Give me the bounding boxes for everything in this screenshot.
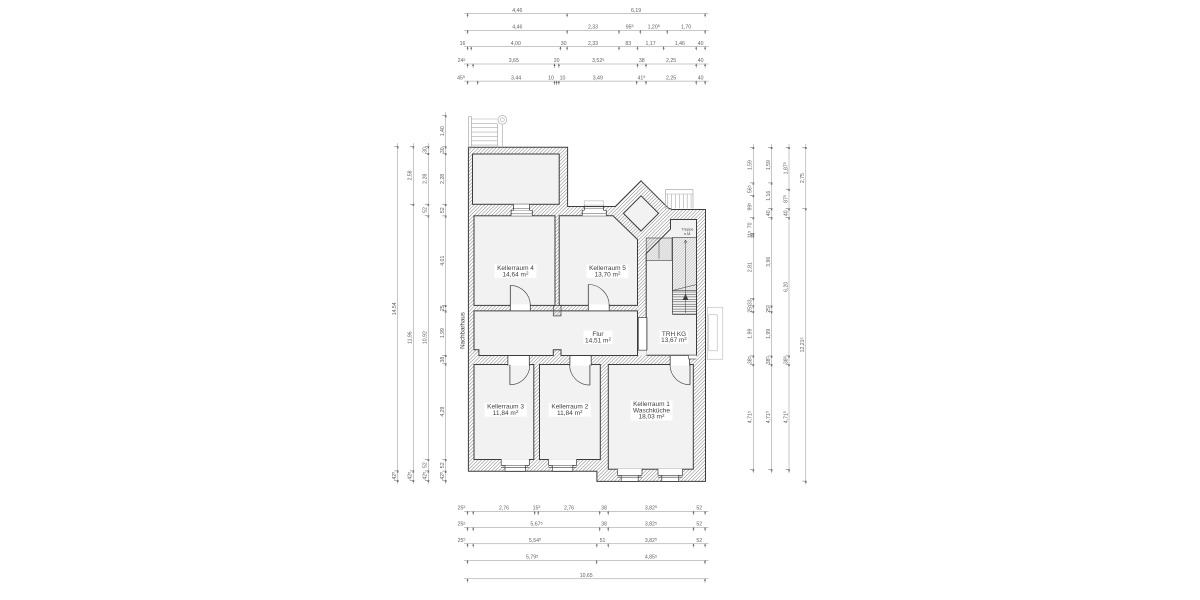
- svg-text:1,17: 1,17: [646, 41, 656, 47]
- svg-text:40: 40: [698, 58, 704, 64]
- svg-text:38: 38: [601, 522, 607, 528]
- svg-text:1,59: 1,59: [766, 160, 772, 170]
- svg-text:38: 38: [440, 357, 446, 363]
- svg-text:1,99: 1,99: [766, 329, 772, 339]
- svg-text:38: 38: [601, 506, 607, 512]
- svg-text:51: 51: [600, 538, 606, 544]
- svg-text:4,29: 4,29: [440, 406, 446, 416]
- svg-text:2,25: 2,25: [666, 58, 676, 64]
- svg-text:30: 30: [561, 41, 567, 47]
- svg-text:25: 25: [440, 305, 446, 311]
- svg-text:2,33: 2,33: [588, 41, 598, 47]
- svg-text:14,64 m2: 14,64 m2: [502, 271, 529, 279]
- svg-text:40: 40: [698, 41, 704, 47]
- svg-text:3,96: 3,96: [766, 257, 772, 267]
- svg-text:2,58: 2,58: [408, 170, 414, 180]
- svg-text:6,20: 6,20: [783, 282, 789, 292]
- svg-text:1,70: 1,70: [681, 25, 691, 31]
- svg-text:13,70 m2: 13,70 m2: [594, 271, 621, 279]
- svg-text:2,28: 2,28: [423, 174, 429, 184]
- svg-text:n.M.: n.M.: [684, 231, 692, 236]
- svg-text:3,44: 3,44: [511, 75, 521, 81]
- svg-text:20: 20: [554, 58, 560, 64]
- svg-text:52: 52: [696, 538, 702, 544]
- svg-text:40: 40: [783, 210, 789, 216]
- svg-text:3,49: 3,49: [593, 75, 603, 81]
- svg-text:10,92: 10,92: [423, 331, 429, 344]
- svg-text:2,28: 2,28: [440, 174, 446, 184]
- svg-text:3,65: 3,65: [509, 58, 519, 64]
- svg-text:6,19: 6,19: [631, 8, 641, 14]
- svg-text:11,84 m2: 11,84 m2: [493, 409, 519, 417]
- svg-text:4,01: 4,01: [440, 256, 446, 266]
- svg-text:2,81: 2,81: [748, 262, 754, 272]
- svg-text:14,54: 14,54: [392, 302, 398, 315]
- svg-text:10: 10: [548, 75, 554, 81]
- svg-text:2,25: 2,25: [666, 75, 676, 81]
- svg-text:52: 52: [423, 207, 429, 213]
- svg-text:1,99: 1,99: [748, 329, 754, 339]
- svg-text:70: 70: [748, 222, 754, 228]
- svg-text:2,75: 2,75: [800, 173, 806, 183]
- svg-text:52: 52: [696, 506, 702, 512]
- svg-text:1,46: 1,46: [675, 41, 685, 47]
- svg-text:11,96: 11,96: [408, 331, 414, 344]
- svg-text:1,40: 1,40: [440, 126, 446, 136]
- svg-text:2,33: 2,33: [588, 25, 598, 31]
- svg-text:1,99: 1,99: [440, 328, 446, 338]
- svg-text:52: 52: [440, 462, 446, 468]
- svg-text:13,67 m2: 13,67 m2: [661, 336, 687, 344]
- svg-text:52: 52: [696, 522, 702, 528]
- svg-text:16: 16: [460, 41, 466, 47]
- svg-text:14,51 m2: 14,51 m2: [585, 337, 612, 345]
- svg-text:1,16: 1,16: [766, 191, 772, 201]
- svg-text:38: 38: [639, 58, 645, 64]
- svg-text:4,46: 4,46: [512, 8, 522, 14]
- svg-text:2,76: 2,76: [499, 506, 509, 512]
- svg-text:30: 30: [440, 147, 446, 153]
- svg-text:18,03 m2: 18,03 m2: [638, 413, 665, 421]
- svg-text:4,00: 4,00: [511, 41, 521, 47]
- svg-text:83: 83: [625, 41, 631, 47]
- svg-text:4,46: 4,46: [512, 25, 522, 31]
- svg-text:2,76: 2,76: [564, 506, 574, 512]
- svg-text:Nachbarhaus: Nachbarhaus: [460, 312, 467, 349]
- svg-text:40: 40: [698, 75, 704, 81]
- svg-text:52: 52: [423, 462, 429, 468]
- svg-text:1,59: 1,59: [748, 160, 754, 170]
- svg-text:30: 30: [423, 147, 429, 153]
- svg-text:10: 10: [560, 75, 566, 81]
- svg-text:40: 40: [766, 210, 772, 216]
- svg-text:10,65: 10,65: [580, 573, 593, 579]
- svg-text:52: 52: [440, 207, 446, 213]
- svg-text:33: 33: [748, 299, 754, 305]
- svg-text:11,84 m2: 11,84 m2: [557, 409, 583, 417]
- svg-text:12,215: 12,215: [800, 337, 806, 352]
